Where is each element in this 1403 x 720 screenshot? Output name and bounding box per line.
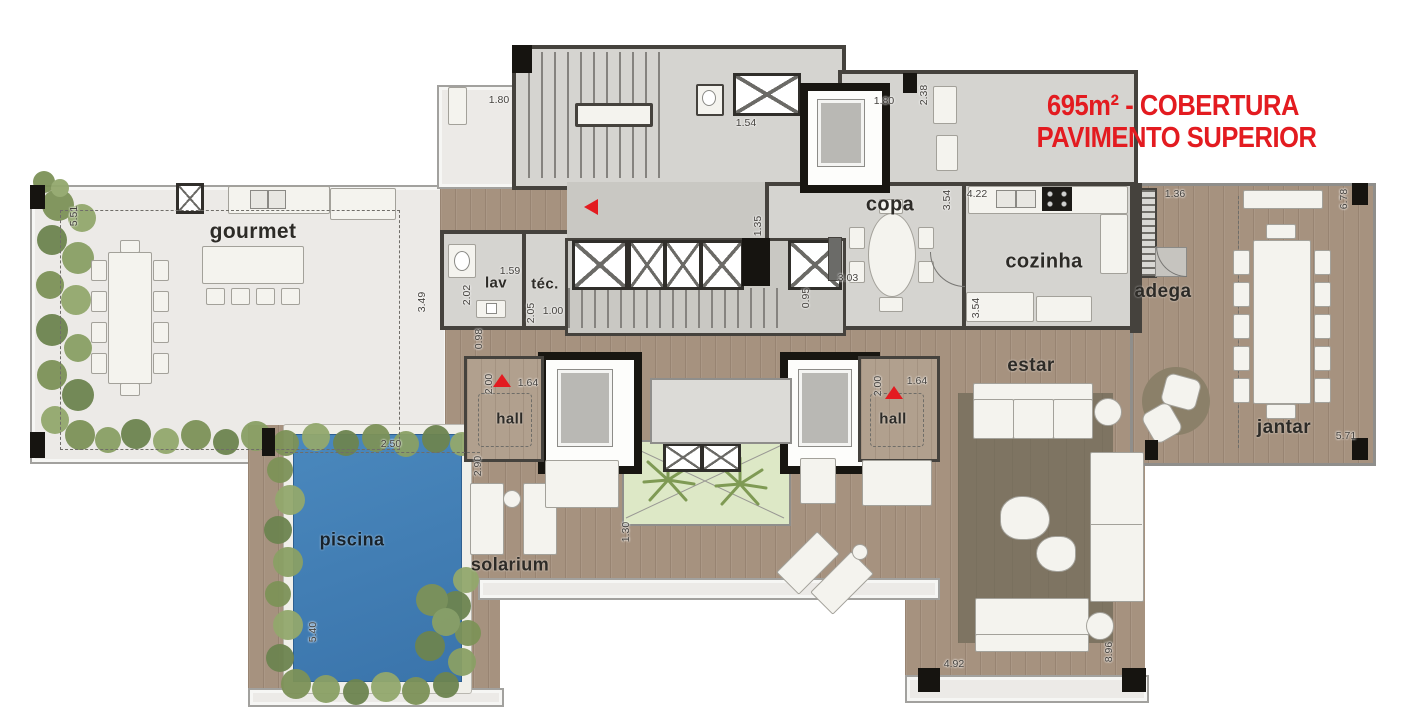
bench [862,460,932,506]
column [903,73,917,93]
pouf [1094,398,1122,426]
sofa-seat [1013,399,1054,439]
dim-label: 2.00 [872,376,884,396]
room-label-hall-left: hall [496,411,523,428]
column [512,45,532,73]
column [30,432,45,458]
dim-label: 0.95 [800,288,812,308]
sink-icon [268,190,286,209]
shaft-xbox [664,240,702,290]
shaft-xbox [572,240,628,290]
chair [1233,282,1250,307]
column [1352,183,1368,205]
side-table [852,544,868,560]
stair-handrail [575,103,653,127]
stairs-center [568,288,778,328]
bench [800,458,836,504]
entry-arrow-icon [885,386,903,399]
chair [1314,314,1331,339]
floor-plan: gourmet lav téc. copa cozinha adega jant… [0,0,1403,720]
chair [1314,346,1331,371]
dining-table-jantar [1253,240,1311,404]
bench [448,87,467,125]
chair [1233,314,1250,339]
column [30,185,45,209]
dim-label: 1.54 [736,117,756,129]
duct-xbox-top [733,73,801,116]
side-table [1086,612,1114,640]
dim-label: 2.90 [472,456,484,476]
dim-label: 1.80 [489,94,509,106]
chaise [1090,452,1144,602]
column [918,668,940,692]
dim-label: 2.50 [381,438,401,450]
room-label-hall-right: hall [879,411,906,428]
sink-icon [996,190,1016,208]
organic-pouf [1000,496,1050,540]
pergola-dashed [60,210,400,450]
dim-label: 2.05 [525,303,537,323]
elevator-car [799,370,851,446]
room-label-gourmet: gourmet [210,220,297,244]
dim-label: 6.78 [1338,189,1350,209]
shaft-solid [742,238,770,286]
dim-label: 1.80 [874,95,894,107]
copa-oval-table [868,213,916,297]
column [1122,668,1146,692]
entry-arrow-icon [493,374,511,387]
chair [1314,378,1331,403]
bench [936,135,958,171]
dim-label: 3.54 [941,190,953,210]
plan-title-line1: 695m² - COBERTURA [1037,90,1310,122]
dim-label: 1.35 [752,216,764,236]
room-label-jantar: jantar [1257,417,1311,439]
sofa-back [975,634,1089,652]
dim-label: 1.00 [543,305,563,317]
room-label-copa: copa [866,194,914,217]
pool-edge-dashed [285,452,480,453]
room-label-solarium: solarium [471,555,549,576]
sofa-seat [973,399,1014,439]
chair [918,227,934,249]
elevator-car [558,370,612,446]
dim-label: 5.40 [307,622,319,642]
sun-lounger [470,483,504,555]
toilet-bowl [454,251,470,271]
dim-label: 8.96 [1103,642,1115,662]
dim-label: 0.98 [473,329,485,349]
chair [1266,224,1296,239]
toilet-bowl [702,90,716,106]
chair [1233,250,1250,275]
dim-label: 1.59 [500,265,520,277]
bench [545,460,619,508]
elevator-car [818,100,864,166]
dim-label: 5.71 [1336,430,1356,442]
dim-label: 1.64 [518,377,538,389]
skylight-glass [650,378,792,444]
chair [879,297,903,312]
dim-label: 3.49 [416,292,428,312]
dim-label: 1.64 [907,375,927,387]
bench [933,86,957,124]
chaise-divider [1090,524,1142,525]
chair [849,227,865,249]
column [1145,440,1158,460]
sink-icon [1016,190,1036,208]
sink-basin [486,303,497,314]
dim-label: 3.54 [970,298,982,318]
organic-pouf [1036,536,1076,572]
dim-label: 2.38 [918,85,930,105]
stove-icon [1042,187,1072,211]
plan-title-line2: PAVIMENTO SUPERIOR [1037,122,1310,154]
dim-label: 2.00 [483,374,495,394]
chair [1314,282,1331,307]
kitchen-counter-right [1100,214,1128,274]
room-label-piscina: piscina [320,530,385,551]
sofa-seat [975,598,1089,636]
side-table [503,490,521,508]
adega-wall [1130,183,1142,333]
sink-icon [250,190,268,209]
shaft-xbox [628,240,666,290]
plan-title: 695m² - COBERTURA PAVIMENTO SUPERIOR [1037,90,1310,155]
dim-label: 1.30 [620,522,632,542]
column [262,428,275,456]
room-label-cozinha: cozinha [1005,251,1082,274]
room-label-adega: adega [1135,281,1192,303]
dim-label: 5.51 [68,206,80,226]
dim-label: 3.03 [838,272,858,284]
chair [1233,378,1250,403]
dim-label: 1.36 [1165,188,1185,200]
atrium-xbox [663,443,703,472]
room-label-estar: estar [1007,355,1054,377]
shaft-xbox [700,240,744,290]
kitchen-island [1036,296,1092,322]
atrium-xbox [701,443,741,472]
dim-label: 2.02 [461,285,473,305]
room-label-lav: lav [485,275,507,292]
chair [1233,346,1250,371]
room-label-tec: téc. [531,276,558,293]
chair [1314,250,1331,275]
sofa-seat [1053,399,1093,439]
stair-direction-icon [584,199,598,215]
sideboard [1243,190,1323,209]
dim-label: 4.92 [944,658,964,670]
dim-label: 4.22 [967,188,987,200]
